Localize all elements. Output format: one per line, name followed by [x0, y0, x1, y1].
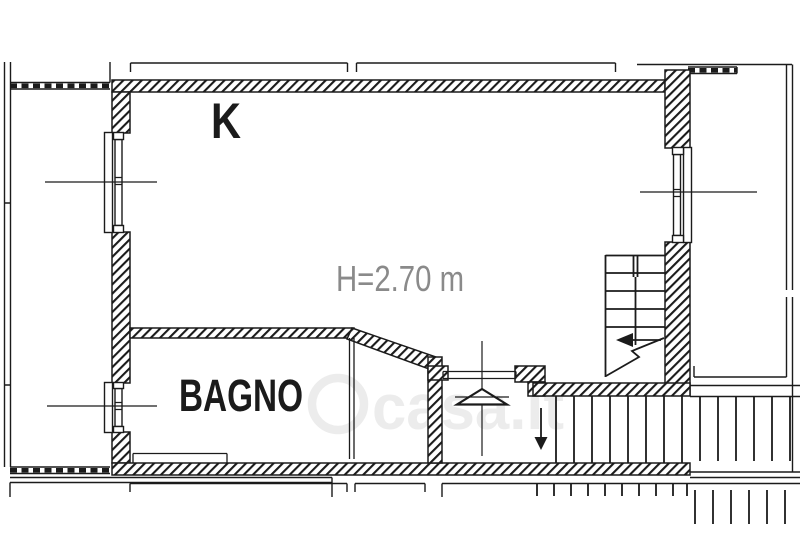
- window-bagno-west: [105, 383, 124, 433]
- stair-center-line: [634, 255, 638, 345]
- wall-stairs-top: [533, 383, 690, 396]
- floor-plan-drawing: casa.it: [0, 0, 800, 533]
- window-outer-frame: [684, 148, 692, 243]
- ceiling-height-label: H=2.70 m: [336, 258, 464, 299]
- floor-plan-page: casa.it: [0, 0, 800, 533]
- wall-bagno-diagonal: [347, 328, 436, 369]
- left-balcony-rail: [4, 62, 11, 467]
- external-staircase: [535, 396, 791, 524]
- bottom-brackets: [130, 484, 800, 498]
- window-kitchen-east: [673, 148, 692, 243]
- stair-flight-right: [700, 397, 790, 461]
- window-block-top: [673, 148, 684, 155]
- stair-flight-lower: [695, 490, 785, 524]
- top-bracket-right: [357, 63, 616, 72]
- internal-staircase: [606, 255, 666, 377]
- watermark-logo-icon: [312, 378, 364, 430]
- room-label-bagno: BAGNO: [179, 370, 303, 421]
- wall-south: [112, 463, 690, 475]
- bottom-left-edge: [10, 478, 332, 498]
- wall-west-middle: [112, 232, 130, 383]
- window-block-top: [114, 133, 124, 140]
- room-label-k: K: [211, 93, 241, 149]
- bagno-door-jambs: [350, 338, 355, 459]
- wall-north: [112, 80, 665, 92]
- stair-tick-marks: [537, 484, 687, 496]
- window-block-bottom: [114, 427, 124, 433]
- stair-direction-arrow-icon: [616, 333, 633, 347]
- right-stair-top-edge: [690, 386, 800, 397]
- wall-west-upper: [112, 92, 130, 133]
- wall-bagno-top: [130, 328, 354, 338]
- window-block-top: [114, 383, 124, 389]
- window-outer-frame: [105, 383, 113, 433]
- wall-entrance-right-stub-upper: [515, 366, 545, 382]
- window-sash: [674, 155, 681, 236]
- top-bracket-left: [131, 63, 348, 72]
- stair-flight-main: [556, 396, 682, 463]
- wall-east-upper: [665, 70, 690, 148]
- window-sash: [115, 389, 122, 427]
- window-block-bottom: [114, 226, 124, 233]
- window-block-bottom: [673, 236, 684, 243]
- wall-west-lower: [112, 432, 130, 463]
- bottom-right-landing-edge: [690, 472, 800, 478]
- bagno-ledge: [133, 454, 227, 464]
- wall-east-stair: [665, 242, 690, 395]
- right-terrace-rail: [694, 65, 793, 473]
- stair-direction-arrow-icon: [535, 437, 548, 450]
